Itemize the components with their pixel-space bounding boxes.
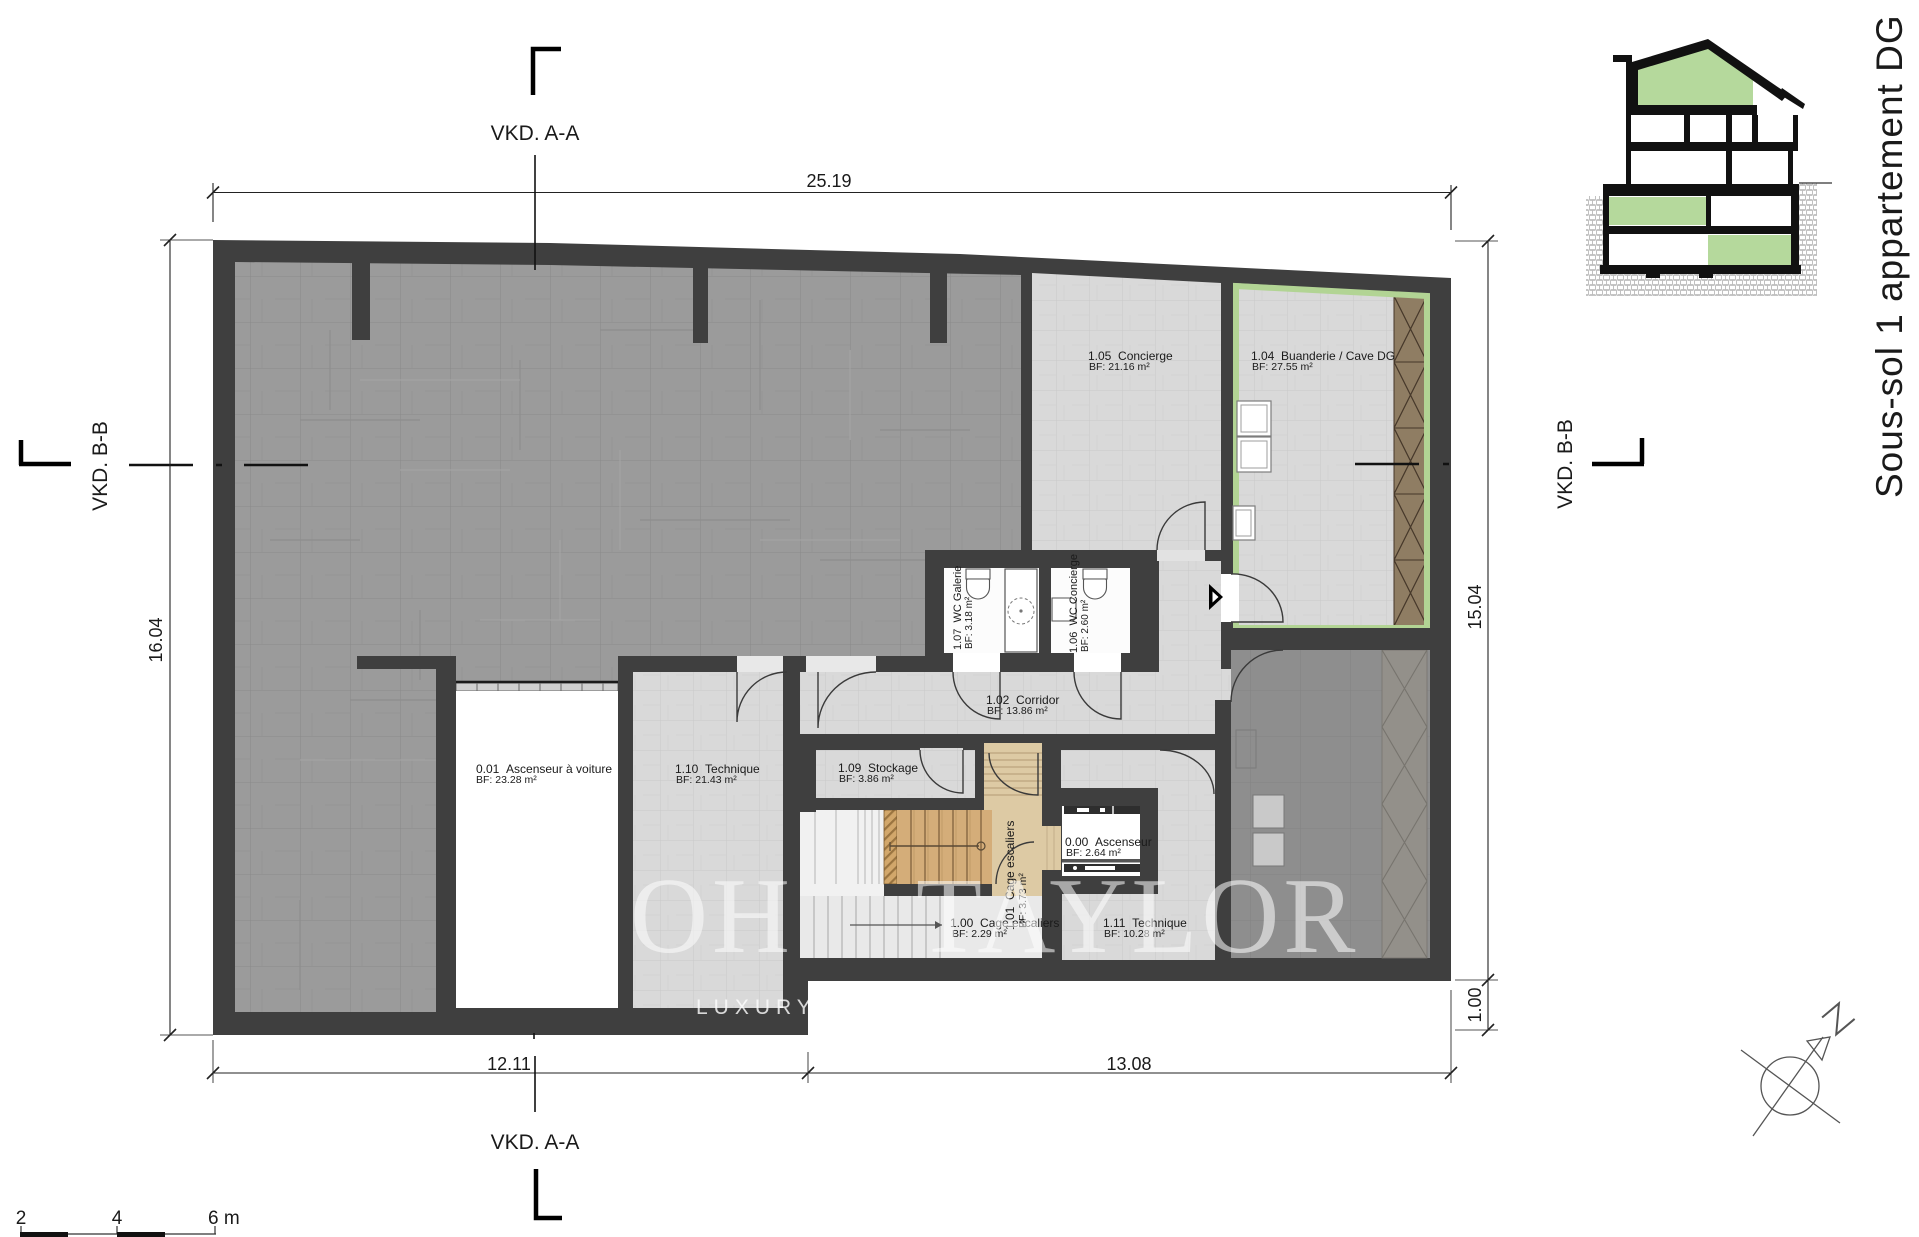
svg-text:BF: 27.55 m²: BF: 27.55 m²: [1252, 361, 1313, 373]
svg-text:15.04: 15.04: [1465, 584, 1485, 629]
svg-text:6 m: 6 m: [208, 1208, 240, 1229]
svg-text:BF: 3.86 m²: BF: 3.86 m²: [839, 773, 894, 785]
svg-text:VKD. B-B: VKD. B-B: [1554, 419, 1577, 509]
svg-text:16.04: 16.04: [146, 617, 166, 662]
svg-text:1.00: 1.00: [1465, 987, 1485, 1022]
svg-text:VKD. A-A: VKD. A-A: [491, 122, 580, 145]
svg-text:1.06 WC Concierge: 1.06 WC Concierge: [1068, 554, 1080, 653]
svg-text:LUXURY: LUXURY: [696, 996, 817, 1019]
svg-text:VKD. A-A: VKD. A-A: [491, 1131, 580, 1154]
svg-text:BF: 3.18 m²: BF: 3.18 m²: [964, 596, 975, 649]
svg-text:BF: 23.28 m²: BF: 23.28 m²: [476, 774, 537, 786]
svg-text:VKD. B-B: VKD. B-B: [89, 421, 112, 511]
svg-text:BF: 21.16 m²: BF: 21.16 m²: [1089, 361, 1150, 373]
svg-text:2: 2: [16, 1208, 27, 1229]
svg-text:Sous-sol 1 appartement DG: Sous-sol 1 appartement DG: [1869, 14, 1910, 498]
svg-text:1.07 WC Galerie: 1.07 WC Galerie: [952, 566, 964, 650]
svg-text:13.08: 13.08: [1106, 1054, 1151, 1074]
svg-text:25.19: 25.19: [806, 171, 851, 191]
svg-text:TAYLOR: TAYLOR: [916, 857, 1359, 976]
svg-text:BF: 2.60 m²: BF: 2.60 m²: [1080, 599, 1091, 652]
svg-text:BF: 21.43 m²: BF: 21.43 m²: [676, 774, 737, 786]
svg-text:OH: OH: [630, 857, 794, 976]
svg-text:BF: 13.86 m²: BF: 13.86 m²: [987, 705, 1048, 717]
svg-text:4: 4: [112, 1208, 123, 1229]
svg-text:12.11: 12.11: [487, 1054, 531, 1074]
